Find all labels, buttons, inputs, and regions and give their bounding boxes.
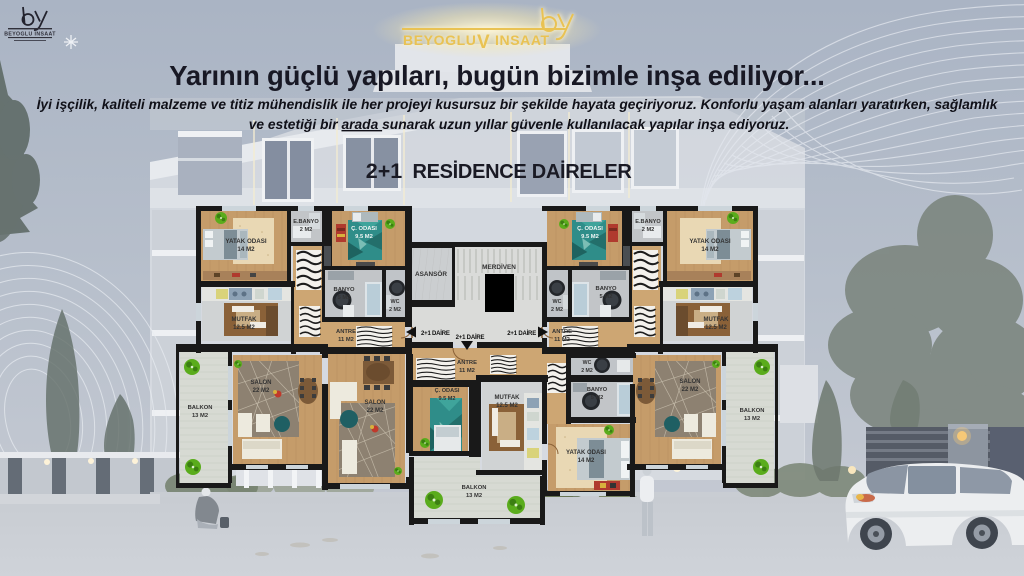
svg-text:E.BANYO: E.BANYO — [293, 219, 319, 225]
svg-text:12.5 M2: 12.5 M2 — [496, 403, 518, 409]
svg-text:YATAK ODASI: YATAK ODASI — [566, 450, 606, 456]
svg-text:MERDİVEN: MERDİVEN — [482, 262, 516, 271]
svg-text:WC: WC — [583, 360, 592, 366]
svg-text:14 M2: 14 M2 — [701, 246, 719, 253]
svg-text:İyi işçilik, kaliteli malzeme: İyi işçilik, kaliteli malzeme ve titiz m… — [37, 96, 999, 112]
svg-text:WC: WC — [391, 299, 400, 305]
svg-text:SALON: SALON — [365, 400, 386, 406]
svg-text:12.5 M2: 12.5 M2 — [233, 325, 255, 331]
svg-text:2 M2: 2 M2 — [551, 307, 563, 313]
svg-text:RESİDENCE DAİRELER: RESİDENCE DAİRELER — [412, 160, 632, 183]
svg-text:Yarının güçlü yapıları, bugün: Yarının güçlü yapıları, bugün bizimle in… — [169, 60, 824, 91]
svg-text:INSAAT: INSAAT — [495, 32, 550, 48]
svg-text:BANYO: BANYO — [334, 287, 355, 293]
svg-text:22 M2: 22 M2 — [367, 408, 384, 414]
svg-text:BALKON: BALKON — [188, 405, 213, 411]
svg-text:5 M2: 5 M2 — [591, 395, 603, 401]
svg-text:11 M2: 11 M2 — [338, 337, 354, 343]
svg-text:V: V — [477, 32, 490, 53]
svg-text:SALON: SALON — [251, 380, 272, 386]
svg-text:14 M2: 14 M2 — [237, 246, 255, 253]
svg-text:YATAK ODASI: YATAK ODASI — [225, 238, 266, 245]
svg-text:ANTRE: ANTRE — [336, 329, 356, 335]
svg-text:2+1 DAİRE: 2+1 DAİRE — [456, 334, 485, 341]
svg-text:WC: WC — [553, 299, 562, 305]
svg-text:E.BANYO: E.BANYO — [635, 219, 661, 225]
svg-text:2 M2: 2 M2 — [389, 307, 401, 313]
svg-text:2+1 DAİRE: 2+1 DAİRE — [421, 330, 450, 337]
svg-text:2 M2: 2 M2 — [581, 368, 593, 374]
svg-text:2+1: 2+1 — [366, 159, 403, 183]
svg-text:22 M2: 22 M2 — [682, 387, 699, 393]
svg-text:BALKON: BALKON — [740, 408, 765, 414]
svg-text:ASANSÖR: ASANSÖR — [415, 269, 447, 278]
svg-text:SALON: SALON — [680, 379, 701, 385]
svg-text:11 M2: 11 M2 — [459, 368, 475, 374]
svg-text:2 M2: 2 M2 — [300, 227, 312, 233]
svg-text:BEYOGLU INSAAT: BEYOGLU INSAAT — [4, 32, 56, 38]
svg-text:YATAK ODASI: YATAK ODASI — [689, 238, 730, 245]
svg-text:5 M2: 5 M2 — [600, 294, 613, 300]
svg-text:11 M2: 11 M2 — [554, 337, 570, 343]
svg-text:9.5 M2: 9.5 M2 — [438, 396, 455, 402]
svg-text:2+1 DAİRE: 2+1 DAİRE — [507, 330, 536, 337]
svg-text:ve estetiği bir arada sunarak: ve estetiği bir arada sunarak uzun yılla… — [249, 117, 790, 132]
svg-text:MUTFAK: MUTFAK — [495, 395, 521, 401]
svg-text:MUTFAK: MUTFAK — [232, 317, 258, 323]
svg-text:9.5 M2: 9.5 M2 — [581, 234, 599, 240]
svg-text:22 M2: 22 M2 — [253, 388, 270, 394]
svg-text:ANTRE: ANTRE — [457, 360, 477, 366]
svg-text:BANYO: BANYO — [596, 286, 617, 292]
svg-text:Ç. ODASI: Ç. ODASI — [577, 226, 603, 232]
svg-text:BALKON: BALKON — [462, 485, 487, 491]
svg-text:13 M2: 13 M2 — [466, 493, 482, 499]
svg-text:2 M2: 2 M2 — [642, 227, 654, 233]
svg-text:BEYOGLU: BEYOGLU — [403, 32, 476, 48]
svg-text:9.5 M2: 9.5 M2 — [355, 234, 373, 240]
svg-text:12.5 M2: 12.5 M2 — [705, 325, 727, 331]
svg-text:MUTFAK: MUTFAK — [704, 317, 730, 323]
svg-text:13 M2: 13 M2 — [192, 413, 208, 419]
svg-text:13 M2: 13 M2 — [744, 416, 760, 422]
svg-text:Ç. ODASI: Ç. ODASI — [435, 388, 460, 394]
svg-text:Ç. ODASI: Ç. ODASI — [351, 226, 377, 232]
svg-text:BANYO: BANYO — [587, 387, 608, 393]
svg-text:14 M2: 14 M2 — [578, 458, 595, 464]
svg-text:5 M2: 5 M2 — [338, 295, 351, 301]
svg-text:ANTRE: ANTRE — [552, 329, 572, 335]
